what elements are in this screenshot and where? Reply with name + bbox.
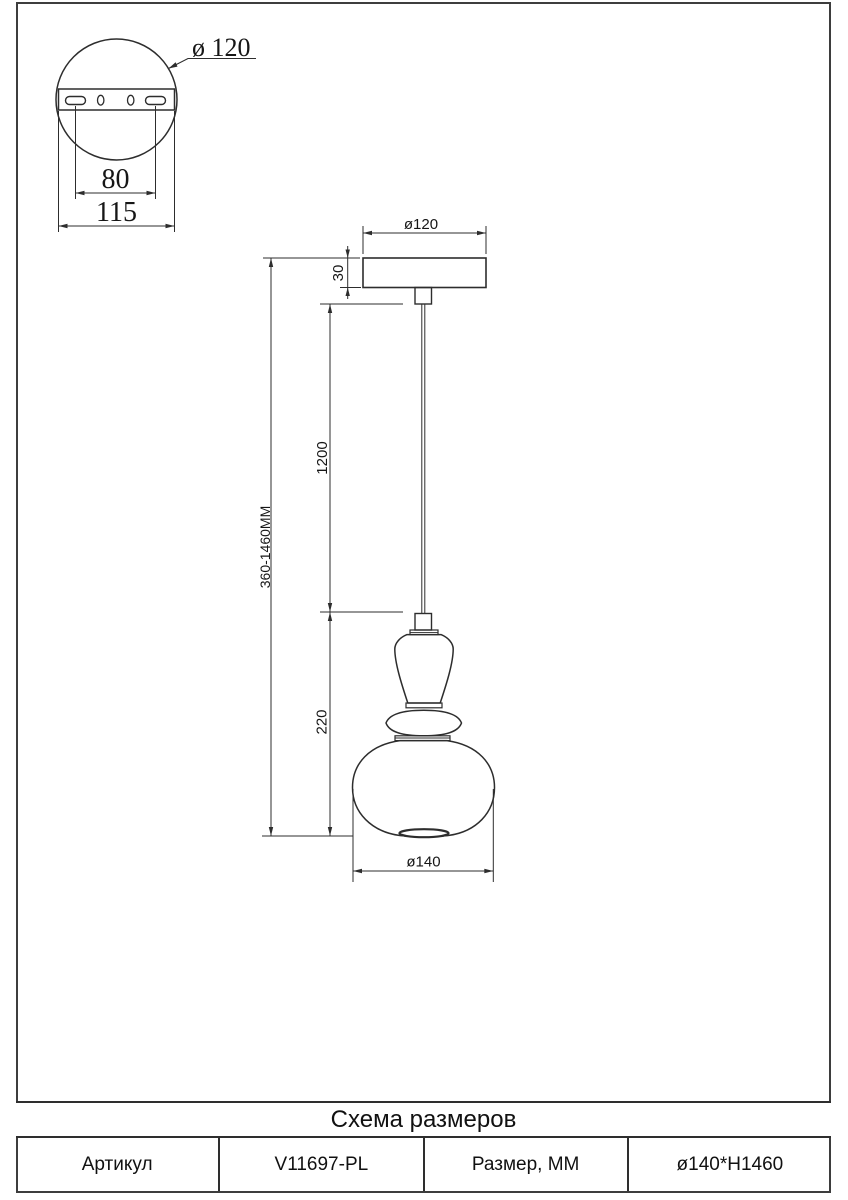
shade-diameter-label: ø140 — [406, 854, 440, 871]
dim-arrow — [269, 827, 273, 836]
canopy-height-label: 30 — [330, 265, 347, 282]
dim-arrow — [328, 612, 332, 621]
cord-length-label: 1200 — [314, 441, 331, 474]
glass-vase — [395, 635, 453, 703]
dim-arrow — [328, 827, 332, 836]
canopy-rect — [363, 258, 486, 288]
dimension-drawing: ø 120 80 115 — [0, 0, 848, 1100]
title-block-row: Артикул V11697-PL Размер, ММ ø140*H1460 — [16, 1138, 831, 1191]
pendant-side-view — [353, 258, 495, 837]
mounting-slot-right — [146, 97, 166, 105]
shade-height-label: 220 — [314, 709, 331, 734]
mounting-plate-detail: ø 120 80 115 — [56, 33, 256, 232]
dim-arrow — [328, 603, 332, 612]
plate-width-label: 115 — [96, 197, 137, 228]
shade-stem — [415, 614, 432, 631]
dim-arrow — [477, 231, 486, 235]
canopy-circle — [56, 39, 177, 160]
article-value-cell: V11697-PL — [220, 1138, 424, 1191]
article-label-cell: Артикул — [16, 1138, 220, 1191]
dim-arrow — [346, 288, 350, 297]
dim-arrow — [76, 191, 85, 195]
glass-saucer — [386, 710, 462, 736]
size-value-cell: ø140*H1460 — [629, 1138, 831, 1191]
hole-spacing-label: 80 — [102, 164, 130, 195]
glass-shade-body — [353, 741, 495, 837]
dim-arrow — [147, 191, 156, 195]
shade-bottom-disc — [400, 829, 449, 837]
screw-hole-right — [128, 95, 134, 105]
dim-arrow — [353, 869, 362, 873]
dim-arrow — [59, 224, 68, 228]
dim-arrow — [363, 231, 372, 235]
title-block-title: Схема размеров — [16, 1101, 831, 1138]
detail-diameter-label: ø 120 — [192, 33, 251, 62]
leader-arrow — [169, 62, 178, 68]
dim-arrow — [484, 869, 493, 873]
overall-height-label: 360-1460MM — [257, 506, 273, 589]
dim-arrow — [328, 304, 332, 313]
main-view-dimensions: ø120 30 1200 360-1460MM 220 ø140 — [257, 216, 493, 882]
size-label-cell: Размер, ММ — [425, 1138, 629, 1191]
canopy-stem — [415, 288, 432, 305]
dim-arrow — [269, 258, 273, 267]
dim-arrow — [346, 250, 350, 259]
canopy-diameter-label: ø120 — [404, 216, 438, 233]
mounting-slot-left — [66, 97, 86, 105]
dim-arrow — [166, 224, 175, 228]
screw-hole-left — [98, 95, 104, 105]
